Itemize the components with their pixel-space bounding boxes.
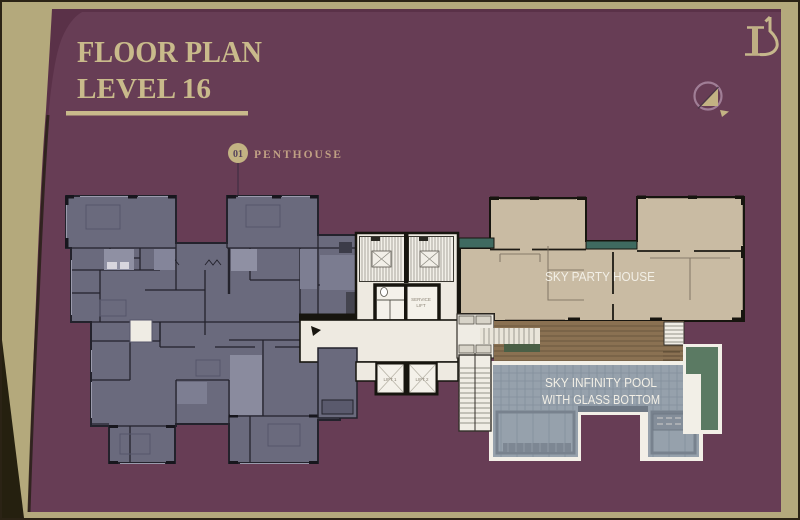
svg-text:SKY PARTY HOUSE: SKY PARTY HOUSE [545, 270, 655, 284]
svg-text:FLOOR PLAN: FLOOR PLAN [77, 34, 262, 69]
svg-text:SERVICE: SERVICE [411, 297, 431, 302]
svg-text:LIFT: LIFT [416, 303, 426, 308]
svg-text:SKY INFINITY POOL: SKY INFINITY POOL [545, 376, 657, 390]
svg-text:LIFT 1: LIFT 1 [384, 377, 397, 382]
svg-text:LEVEL 16: LEVEL 16 [77, 73, 211, 105]
svg-text:01: 01 [233, 149, 243, 160]
svg-text:LIFT 2: LIFT 2 [416, 377, 429, 382]
svg-text:PENTHOUSE: PENTHOUSE [254, 149, 343, 161]
svg-text:WITH GLASS BOTTOM: WITH GLASS BOTTOM [542, 393, 660, 407]
